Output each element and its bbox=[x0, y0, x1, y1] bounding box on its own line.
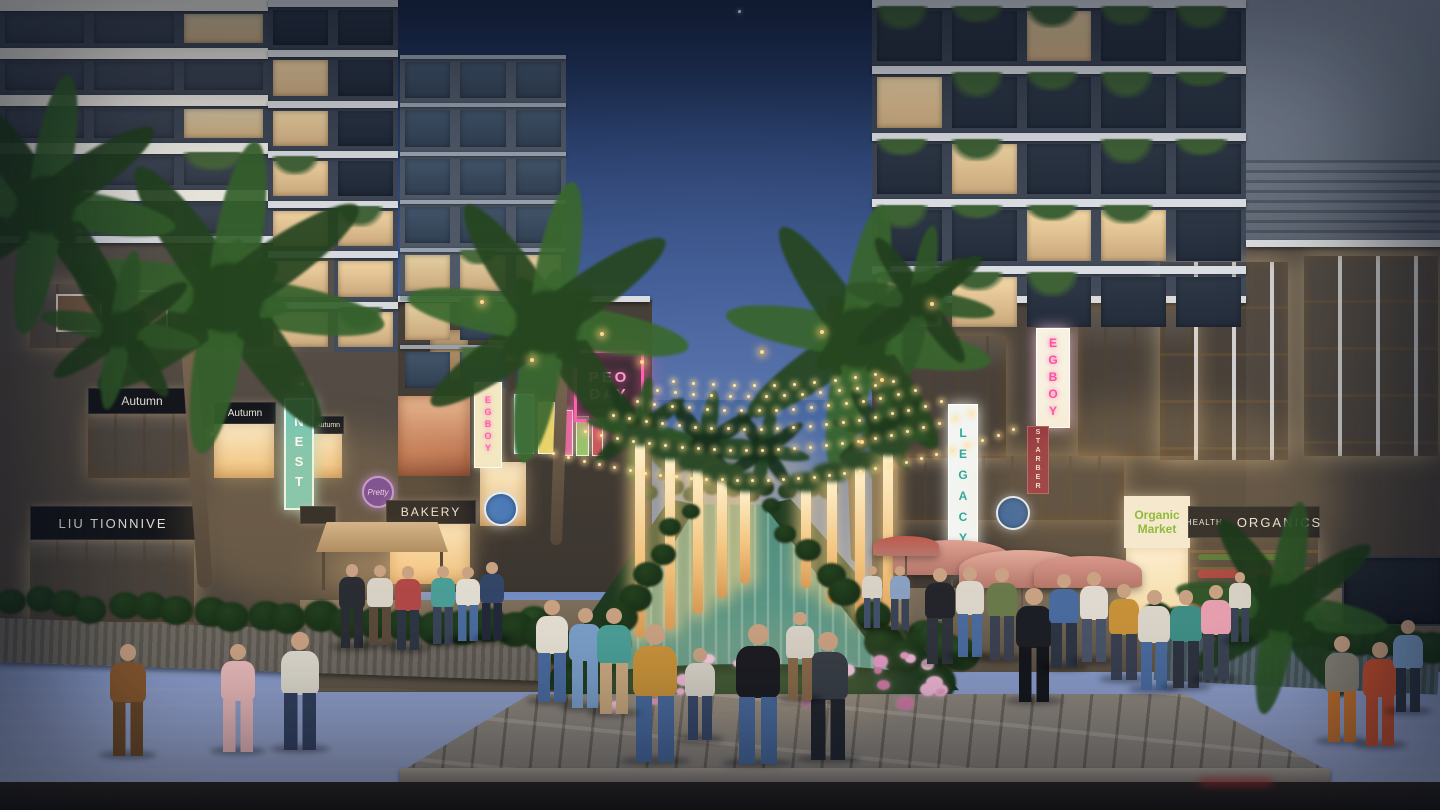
person-legs bbox=[113, 702, 143, 756]
string-light-bulb bbox=[629, 469, 632, 472]
string-light-bulb bbox=[858, 419, 861, 422]
light-wrapped-trunk bbox=[665, 454, 675, 630]
apartment-window bbox=[405, 110, 450, 146]
person-legs bbox=[1141, 642, 1168, 690]
person-head bbox=[544, 600, 559, 615]
person-head bbox=[374, 565, 386, 577]
string-light-bulb bbox=[922, 426, 925, 429]
right-corner-trim bbox=[1246, 240, 1440, 247]
apartment-window bbox=[94, 62, 173, 91]
string-light-bulb bbox=[924, 405, 927, 408]
string-light-bulb bbox=[723, 409, 726, 412]
person-legs bbox=[990, 616, 1015, 660]
shrub bbox=[795, 539, 821, 561]
person-legs bbox=[688, 696, 713, 740]
light-wrapped-trunk bbox=[801, 486, 811, 588]
light-wrapped-trunk bbox=[740, 486, 750, 584]
person-torso bbox=[1393, 635, 1422, 669]
person-legs bbox=[958, 614, 982, 657]
apartment-window bbox=[273, 10, 328, 45]
light-wrapped-trunk bbox=[693, 466, 703, 614]
string-light-bulb bbox=[584, 430, 587, 433]
person-head bbox=[120, 644, 137, 661]
apartment-window bbox=[405, 159, 450, 195]
apartment-window bbox=[338, 111, 393, 146]
flower-cluster bbox=[676, 688, 684, 695]
person-legs bbox=[1019, 647, 1050, 702]
balcony-slab bbox=[0, 0, 268, 11]
person-torso bbox=[1201, 600, 1231, 635]
person-head bbox=[867, 566, 876, 575]
balcony-vine bbox=[876, 139, 928, 156]
person-head bbox=[793, 612, 806, 625]
awning-post bbox=[322, 552, 325, 590]
egboy-label: EGBOY bbox=[1046, 336, 1060, 421]
apartment-window bbox=[338, 60, 393, 95]
liu-tionnive-sign: LIU TIONNIVE bbox=[30, 506, 196, 540]
promenade-curb bbox=[400, 768, 1330, 782]
shrub bbox=[74, 596, 106, 623]
market-awning bbox=[316, 522, 448, 552]
person-torso bbox=[808, 652, 849, 699]
apartment-window bbox=[273, 111, 328, 146]
apartment-window bbox=[184, 109, 263, 138]
balcony-slab bbox=[0, 48, 268, 59]
autumn-shop-window bbox=[88, 412, 194, 478]
apartment-window bbox=[460, 159, 505, 195]
apartment-window bbox=[405, 207, 450, 243]
balcony-vine bbox=[1026, 272, 1078, 298]
string-light-bulb bbox=[671, 405, 674, 408]
balcony-vine bbox=[951, 139, 1003, 161]
person-head bbox=[1334, 636, 1350, 652]
palm-tuft bbox=[725, 472, 767, 492]
apartment-window bbox=[460, 110, 505, 146]
string-light-bulb bbox=[809, 425, 812, 428]
string-light-bulb bbox=[892, 380, 895, 383]
string-light-bulb bbox=[644, 472, 647, 475]
string-light-bulb bbox=[997, 434, 1000, 437]
shrub bbox=[762, 498, 780, 513]
person-head bbox=[606, 608, 622, 624]
string-light-bulb bbox=[697, 447, 700, 450]
string-light-bulb bbox=[690, 477, 693, 480]
person-head bbox=[818, 632, 837, 651]
star bbox=[738, 10, 741, 13]
string-light-bulb bbox=[906, 430, 909, 433]
tree-light bbox=[880, 378, 884, 382]
person-torso bbox=[633, 646, 677, 697]
flower-cluster bbox=[874, 667, 882, 673]
shrub bbox=[159, 596, 193, 625]
balcony-slab bbox=[0, 95, 268, 106]
apartment-window bbox=[516, 110, 561, 146]
string-light-bulb bbox=[940, 400, 943, 403]
egboy-banner-sign: EGBOY bbox=[474, 382, 502, 468]
balcony-vine bbox=[1026, 205, 1078, 221]
string-light-bulb bbox=[694, 426, 697, 429]
egboy-label: EGBOY bbox=[483, 395, 493, 455]
tree-light bbox=[530, 358, 534, 362]
person-torso bbox=[1363, 659, 1396, 697]
string-light-bulb bbox=[632, 440, 635, 443]
string-light-bulb bbox=[874, 384, 877, 387]
person-head bbox=[1235, 572, 1246, 583]
flower-cluster bbox=[873, 655, 888, 667]
person-torso bbox=[1170, 606, 1201, 642]
cafe-badge-sign bbox=[484, 492, 518, 526]
string-light-bulb bbox=[914, 389, 917, 392]
apartment-window bbox=[338, 10, 393, 45]
person-torso bbox=[862, 576, 882, 599]
person-head bbox=[486, 562, 498, 574]
person-legs bbox=[739, 697, 777, 764]
string-light-bulb bbox=[743, 428, 746, 431]
person-torso bbox=[987, 583, 1016, 617]
person-head bbox=[748, 624, 769, 645]
tree-light bbox=[820, 330, 824, 334]
person-head bbox=[346, 564, 359, 577]
balcony-vine bbox=[951, 205, 1003, 218]
tree-light bbox=[760, 350, 764, 354]
balcony-vine bbox=[1100, 205, 1152, 224]
string-light-bulb bbox=[954, 417, 957, 420]
string-light-bulb bbox=[862, 400, 865, 403]
balcony-slab bbox=[400, 152, 566, 156]
apartment-window bbox=[94, 14, 173, 43]
string-light-bulb bbox=[656, 389, 659, 392]
person-head bbox=[645, 624, 666, 645]
person-torso bbox=[1138, 606, 1170, 643]
palm-crown bbox=[516, 290, 580, 354]
string-light-bulb bbox=[907, 409, 910, 412]
person-torso bbox=[597, 625, 631, 664]
apartment-window bbox=[1176, 210, 1241, 260]
person-torso bbox=[339, 577, 366, 608]
palm-crown bbox=[1258, 584, 1306, 632]
apartment-window bbox=[460, 62, 505, 98]
person-head bbox=[578, 608, 593, 623]
apartment-window bbox=[338, 161, 393, 196]
string-light-bulb bbox=[809, 446, 812, 449]
apartment-window bbox=[516, 159, 561, 195]
string-light-bulb bbox=[874, 373, 877, 376]
balcony-slab bbox=[400, 200, 566, 204]
person-torso bbox=[1049, 589, 1079, 624]
balcony-vine bbox=[1100, 72, 1152, 98]
person-head bbox=[1401, 620, 1415, 634]
apartment-window bbox=[1027, 144, 1092, 194]
tree-light bbox=[860, 440, 864, 444]
string-light-bulb bbox=[938, 422, 941, 425]
string-light-bulb bbox=[842, 421, 845, 424]
person-legs bbox=[538, 653, 565, 702]
person-head bbox=[963, 567, 977, 581]
person-legs bbox=[369, 607, 391, 645]
flower-cluster bbox=[926, 676, 942, 689]
string-light-bulb bbox=[753, 384, 756, 387]
apartment-window bbox=[273, 60, 328, 95]
flower-cluster bbox=[897, 697, 913, 710]
apartment-window bbox=[1101, 277, 1166, 327]
string-light-bulb bbox=[761, 449, 764, 452]
person-torso bbox=[431, 578, 456, 607]
string-light-bulb bbox=[776, 427, 779, 430]
string-light-bulb bbox=[552, 452, 555, 455]
string-light-bulb bbox=[645, 420, 648, 423]
person-torso bbox=[925, 583, 956, 619]
person-legs bbox=[1082, 619, 1106, 662]
person-torso bbox=[736, 646, 781, 698]
tree-light bbox=[480, 300, 484, 304]
string-light-bulb bbox=[616, 437, 619, 440]
person-legs bbox=[223, 700, 252, 752]
string-light-bulb bbox=[733, 384, 736, 387]
person-head bbox=[995, 568, 1009, 582]
right-corner-store-window bbox=[1304, 256, 1438, 456]
string-light-bulb bbox=[773, 384, 776, 387]
string-light-bulb bbox=[775, 409, 778, 412]
string-light-bulb bbox=[583, 460, 586, 463]
balcony-vine bbox=[1100, 139, 1152, 164]
twilight-canal-promenade-render: Soltanu Fegara Autumn Autumn Autumn NEST… bbox=[0, 0, 1440, 810]
string-light-bulb bbox=[813, 476, 816, 479]
apartment-window bbox=[184, 14, 263, 43]
string-light-bulb bbox=[760, 428, 763, 431]
balcony-vine bbox=[1026, 6, 1078, 28]
person-head bbox=[1179, 590, 1194, 605]
string-light-bulb bbox=[678, 424, 681, 427]
balcony-slab bbox=[400, 55, 566, 59]
balcony-vine bbox=[1175, 139, 1227, 156]
string-light-bulb bbox=[793, 383, 796, 386]
person-torso bbox=[685, 663, 714, 697]
balcony-vine bbox=[876, 6, 928, 30]
string-light-bulb bbox=[612, 414, 615, 417]
string-light-bulb bbox=[856, 387, 859, 390]
apartment-window bbox=[184, 62, 263, 91]
person-head bbox=[402, 566, 415, 579]
person-legs bbox=[1111, 634, 1137, 680]
person-torso bbox=[536, 616, 569, 654]
string-light-bulb bbox=[970, 412, 973, 415]
person-torso bbox=[1229, 583, 1251, 609]
cafe-umbrella bbox=[873, 536, 939, 556]
tree-light bbox=[600, 332, 604, 336]
person-legs bbox=[811, 699, 845, 760]
string-light-bulb bbox=[713, 448, 716, 451]
string-light-bulb bbox=[890, 434, 893, 437]
person-head bbox=[693, 648, 707, 662]
person-torso bbox=[395, 579, 422, 610]
person-torso bbox=[221, 661, 256, 701]
apartment-window bbox=[405, 62, 450, 98]
person-torso bbox=[956, 581, 985, 614]
string-light-bulb bbox=[951, 449, 954, 452]
tree-light bbox=[930, 302, 934, 306]
palm-crown bbox=[102, 312, 138, 348]
autumn-label: Autumn bbox=[228, 408, 262, 419]
person-head bbox=[895, 566, 905, 576]
balcony-vine bbox=[1100, 6, 1152, 26]
palm-crown bbox=[903, 283, 937, 317]
string-light-bulb bbox=[736, 479, 739, 482]
person-legs bbox=[482, 603, 503, 640]
balcony-vine bbox=[272, 156, 318, 175]
string-light-bulb bbox=[729, 395, 732, 398]
string-light-bulb bbox=[874, 437, 877, 440]
balcony-vine bbox=[951, 72, 1003, 97]
person-torso bbox=[1016, 606, 1052, 648]
person-head bbox=[1372, 642, 1388, 658]
shrub bbox=[774, 525, 796, 543]
person-torso bbox=[786, 626, 814, 659]
string-light-bulb bbox=[706, 408, 709, 411]
person-torso bbox=[1080, 586, 1109, 619]
string-light-bulb bbox=[747, 395, 750, 398]
string-light-bulb bbox=[1012, 428, 1015, 431]
balcony-slab bbox=[400, 103, 566, 107]
person-head bbox=[1087, 572, 1101, 586]
person-torso bbox=[281, 651, 319, 695]
person-torso bbox=[367, 578, 393, 608]
string-light-bulb bbox=[905, 461, 908, 464]
person-head bbox=[1147, 590, 1162, 605]
string-light-bulb bbox=[767, 479, 770, 482]
person-torso bbox=[480, 574, 505, 603]
apartment-window bbox=[1176, 277, 1241, 327]
autumn-label: Autumn bbox=[121, 394, 162, 408]
person-legs bbox=[397, 610, 420, 650]
string-light-bulb bbox=[765, 395, 768, 398]
apartment-window bbox=[5, 14, 84, 43]
person-legs bbox=[1396, 668, 1421, 712]
person-head bbox=[291, 632, 309, 650]
balcony-vine bbox=[1175, 72, 1227, 87]
person-legs bbox=[284, 693, 316, 750]
person-torso bbox=[456, 579, 480, 606]
string-light-bulb bbox=[600, 434, 603, 437]
balcony-slab bbox=[268, 101, 398, 108]
flower-cluster bbox=[877, 680, 890, 690]
person-torso bbox=[1109, 599, 1140, 635]
person-head bbox=[437, 566, 449, 578]
string-light-bulb bbox=[834, 379, 837, 382]
string-light-bulb bbox=[782, 478, 785, 481]
person-torso bbox=[110, 662, 146, 703]
tree-light bbox=[640, 360, 644, 364]
string-light-bulb bbox=[845, 402, 848, 405]
person-head bbox=[1057, 574, 1071, 588]
balcony-vine bbox=[1026, 72, 1078, 90]
person-legs bbox=[1328, 691, 1356, 742]
apartment-window bbox=[338, 261, 393, 296]
string-light-bulb bbox=[745, 449, 748, 452]
string-light-bulb bbox=[758, 409, 761, 412]
string-light-bulb bbox=[681, 446, 684, 449]
balcony-vine bbox=[1175, 6, 1227, 29]
person-legs bbox=[891, 599, 908, 630]
string-light-bulb bbox=[859, 470, 862, 473]
person-legs bbox=[1366, 696, 1394, 746]
person-legs bbox=[864, 598, 881, 628]
string-light-bulb bbox=[897, 393, 900, 396]
balcony-slab bbox=[268, 0, 398, 7]
person-torso bbox=[890, 576, 910, 600]
egboy-neon-sign: EGBOY bbox=[1036, 328, 1070, 428]
shrub bbox=[682, 504, 700, 519]
string-light-bulb bbox=[729, 449, 732, 452]
balcony-slab bbox=[268, 50, 398, 57]
taillight-streak bbox=[1200, 778, 1272, 786]
road-foreground bbox=[0, 782, 1440, 810]
person-legs bbox=[572, 660, 599, 708]
person-legs bbox=[636, 696, 673, 762]
string-light-bulb bbox=[636, 400, 639, 403]
string-light-bulb bbox=[777, 448, 780, 451]
light-wrapped-trunk bbox=[717, 476, 727, 598]
shrub bbox=[214, 602, 249, 632]
person-legs bbox=[788, 658, 812, 700]
person-head bbox=[462, 567, 473, 578]
apartment-window bbox=[405, 255, 450, 291]
liu-label: LIU TIONNIVE bbox=[58, 516, 167, 531]
string-light-bulb bbox=[838, 389, 841, 392]
string-light-bulb bbox=[879, 397, 882, 400]
string-light-bulb bbox=[672, 380, 675, 383]
person-torso bbox=[1325, 653, 1359, 692]
person-head bbox=[1025, 588, 1042, 605]
person-legs bbox=[1231, 608, 1250, 642]
apartment-window bbox=[877, 77, 942, 127]
apartment-window bbox=[516, 62, 561, 98]
balcony-vine bbox=[951, 6, 1003, 23]
person-legs bbox=[600, 663, 628, 714]
